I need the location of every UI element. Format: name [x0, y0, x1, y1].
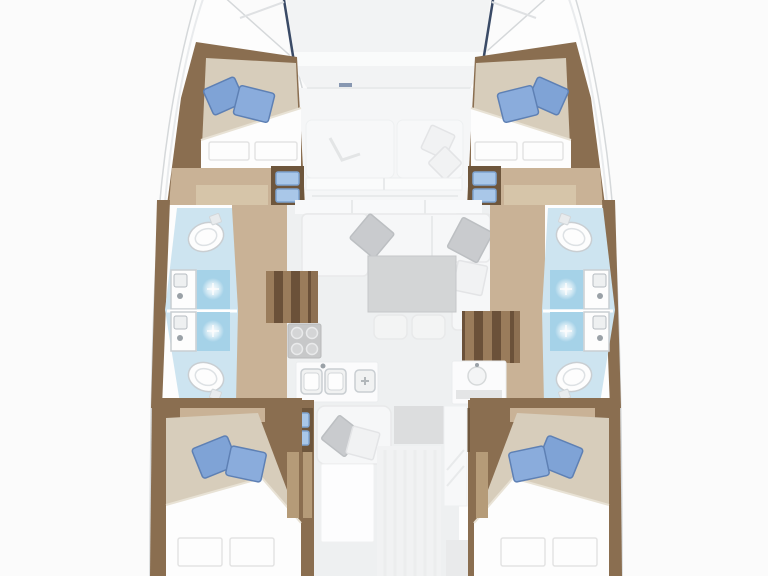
faucet	[475, 363, 479, 367]
aft-locker	[444, 406, 467, 506]
stool	[412, 315, 445, 339]
stairs-starboard	[462, 311, 520, 363]
counter-edge	[456, 390, 502, 399]
burner	[292, 328, 303, 339]
aft-cabin-starboard	[470, 398, 622, 576]
burner	[307, 344, 318, 355]
floorplan-stage	[0, 0, 768, 576]
burner	[307, 328, 318, 339]
white-pillow	[230, 538, 274, 566]
drawer	[473, 172, 496, 185]
round-sink	[468, 367, 486, 385]
faucet	[597, 293, 603, 299]
settee-pillow-white	[346, 426, 380, 460]
salon-table	[368, 256, 456, 312]
sofa-pillow-white	[452, 260, 488, 296]
salon-front-seat	[295, 200, 482, 214]
cockpit-bench-cushion-left	[306, 120, 394, 178]
side-cabinet	[287, 452, 299, 518]
white-pillow	[501, 538, 545, 566]
faucet	[177, 335, 183, 341]
basin	[174, 274, 187, 287]
basin	[593, 274, 606, 287]
burner	[292, 344, 303, 355]
head-starboard	[490, 200, 621, 410]
stool	[374, 315, 407, 339]
aft-table-block	[394, 406, 444, 444]
blue-pillow	[225, 446, 266, 483]
forward-cockpit	[292, 88, 484, 205]
faucet	[597, 335, 603, 341]
aft-cabin-port	[150, 398, 302, 576]
blue-pillow	[508, 446, 549, 483]
catamaran-floorplan	[0, 0, 768, 576]
berth-panel	[321, 464, 374, 542]
basin	[174, 316, 187, 329]
white-pillow	[209, 142, 249, 160]
faucet	[177, 293, 183, 299]
drawer	[276, 172, 299, 185]
side-cabinet	[476, 452, 488, 518]
white-pillow	[523, 142, 563, 160]
white-pillow	[475, 142, 517, 160]
white-pillow	[178, 538, 222, 566]
white-pillow	[255, 142, 297, 160]
faucet	[321, 364, 326, 369]
aft-deck	[377, 446, 441, 576]
basin	[593, 316, 606, 329]
aft-step	[446, 540, 468, 576]
white-pillow	[553, 538, 597, 566]
aft-lounge	[281, 400, 499, 576]
stairs-port	[266, 271, 318, 323]
